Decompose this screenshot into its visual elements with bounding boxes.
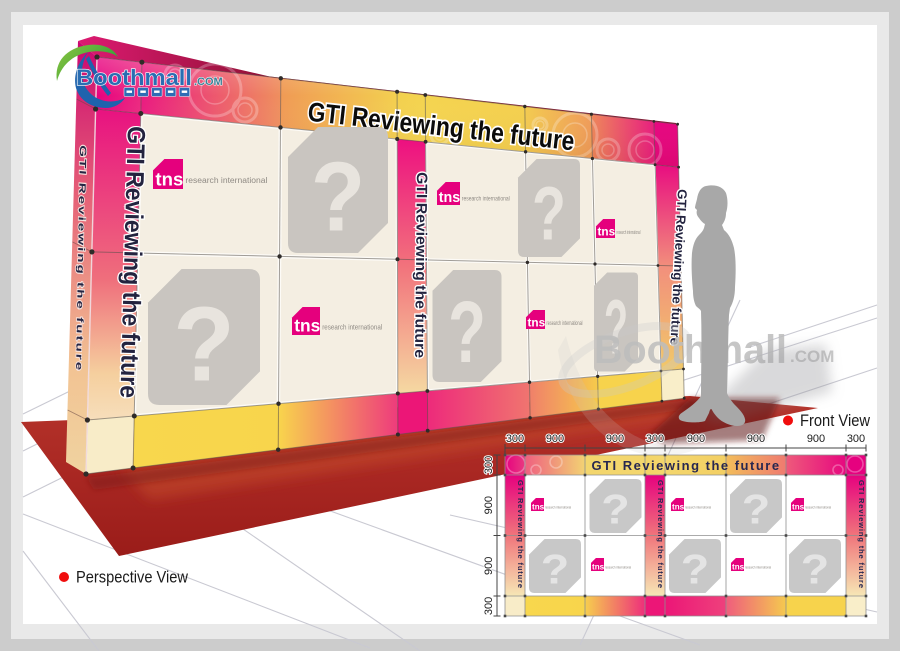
svg-text:research international: research international bbox=[545, 504, 571, 509]
svg-text:research international: research international bbox=[685, 504, 711, 509]
svg-text:tns: tns bbox=[732, 562, 745, 571]
svg-text:?: ? bbox=[532, 172, 566, 257]
svg-text:900: 900 bbox=[687, 433, 705, 445]
svg-text:900: 900 bbox=[483, 557, 495, 575]
svg-text:GTI Reviewing the future: GTI Reviewing the future bbox=[656, 480, 665, 588]
svg-text:Front View: Front View bbox=[800, 412, 870, 430]
svg-text:?: ? bbox=[311, 141, 365, 251]
svg-text:?: ? bbox=[541, 546, 569, 592]
svg-text:GTI Reviewing the future: GTI Reviewing the future bbox=[411, 172, 430, 358]
svg-text:research international: research international bbox=[547, 321, 583, 327]
svg-text:research international: research international bbox=[605, 564, 631, 569]
svg-text:300: 300 bbox=[483, 597, 495, 615]
svg-text:research international: research international bbox=[322, 322, 382, 331]
svg-text:?: ? bbox=[801, 546, 829, 592]
svg-text:Boothmall: Boothmall bbox=[76, 65, 192, 90]
svg-text:300: 300 bbox=[646, 433, 664, 445]
svg-text:?: ? bbox=[742, 486, 770, 532]
svg-text:?: ? bbox=[681, 546, 709, 592]
svg-text:tns: tns bbox=[155, 168, 183, 189]
svg-text:tns: tns bbox=[528, 316, 546, 330]
svg-text:research international: research international bbox=[185, 176, 267, 185]
svg-text:300: 300 bbox=[483, 456, 495, 474]
svg-text:Perspective View: Perspective View bbox=[76, 569, 188, 587]
svg-text:900: 900 bbox=[546, 433, 564, 445]
svg-text:900: 900 bbox=[606, 433, 624, 445]
svg-text:?: ? bbox=[601, 486, 629, 532]
svg-text:tns: tns bbox=[532, 502, 545, 511]
svg-text:tns: tns bbox=[792, 502, 805, 511]
svg-text:tns: tns bbox=[672, 502, 685, 511]
svg-text:research international: research international bbox=[805, 504, 831, 509]
svg-text:tns: tns bbox=[598, 225, 616, 239]
svg-text:900: 900 bbox=[483, 496, 495, 514]
svg-text:900: 900 bbox=[807, 433, 825, 445]
svg-text:?: ? bbox=[173, 284, 235, 403]
svg-text:tns: tns bbox=[294, 316, 320, 336]
svg-text:research international: research international bbox=[617, 230, 641, 236]
svg-text:900: 900 bbox=[747, 433, 765, 445]
svg-text:.COM: .COM bbox=[194, 76, 223, 88]
svg-text:GTI Reviewing the future: GTI Reviewing the future bbox=[516, 480, 525, 588]
svg-text:tns: tns bbox=[592, 562, 605, 571]
svg-text:GTI Reviewing the future: GTI Reviewing the future bbox=[591, 458, 780, 473]
svg-text:300: 300 bbox=[847, 433, 865, 445]
svg-text:?: ? bbox=[448, 283, 486, 380]
svg-text:tns: tns bbox=[439, 190, 460, 206]
svg-text:research international: research international bbox=[462, 195, 510, 202]
svg-text:GTI Reviewing the future: GTI Reviewing the future bbox=[857, 480, 866, 588]
svg-text:research international: research international bbox=[745, 564, 771, 569]
svg-text:300: 300 bbox=[506, 433, 524, 445]
